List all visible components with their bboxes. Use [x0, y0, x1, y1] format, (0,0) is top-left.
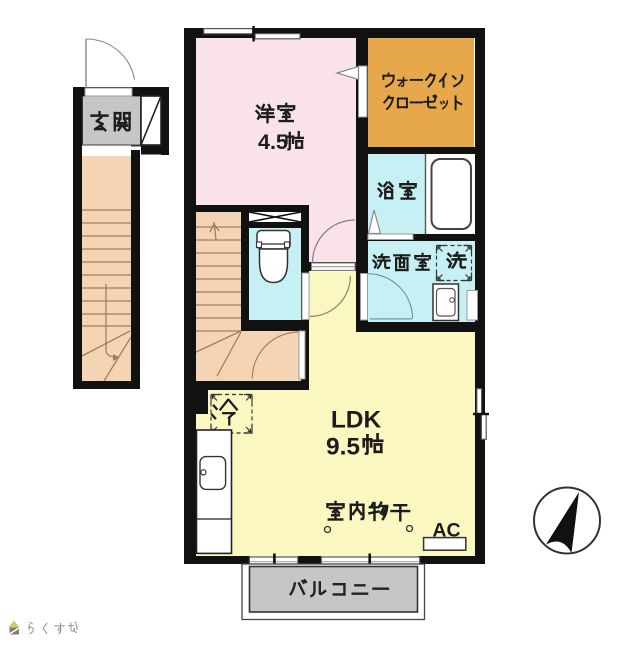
svg-text:4.5: 4.5: [258, 130, 288, 154]
svg-text:9.5: 9.5: [326, 434, 360, 461]
svg-text:LDK: LDK: [331, 407, 382, 434]
svg-text:AC: AC: [432, 520, 460, 542]
